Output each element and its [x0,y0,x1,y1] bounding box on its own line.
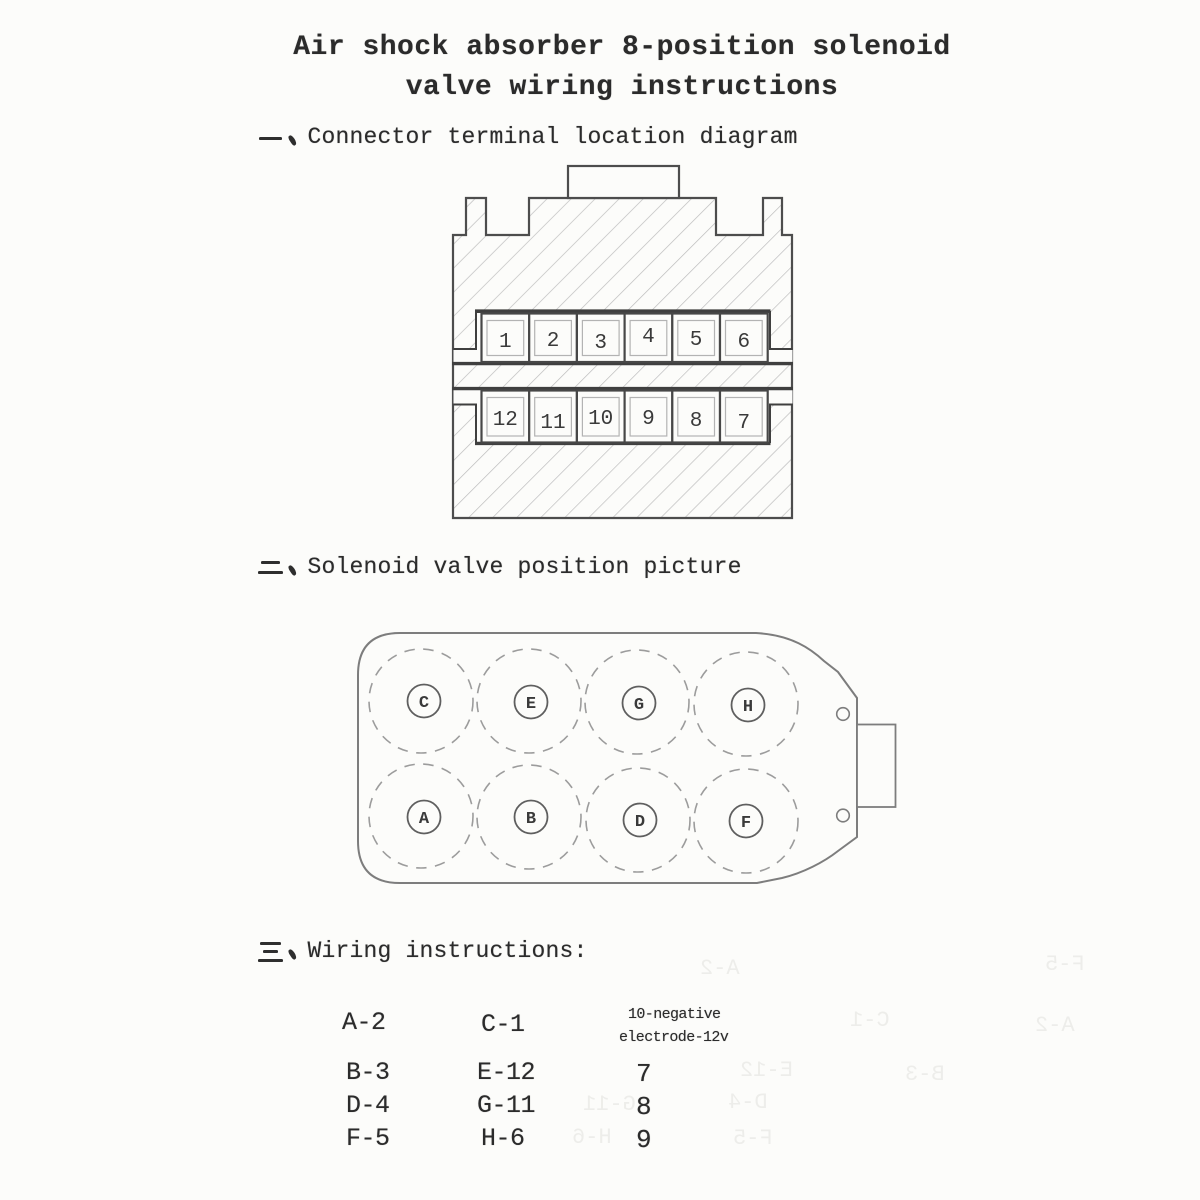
terminal-box-5: 5 [672,314,720,363]
position-label: B [526,810,536,829]
ghost-text: C-1 [850,1008,890,1033]
terminal-label: 10 [588,408,613,431]
ghost-text: A-2 [700,956,740,981]
terminal-label: 6 [737,331,750,354]
terminal-box-9: 9 [625,391,673,443]
connector-diagram: 1 2 3 4 5 6 [443,158,803,530]
terminal-label: 3 [594,332,607,355]
section-2-heading-text: Solenoid valve position picture [308,554,742,580]
position-label: D [635,813,645,832]
terminal-label: 11 [540,412,565,435]
terminal-box-6: 6 [720,314,768,363]
cjk-marker-one [258,124,283,150]
terminal-box-1: 1 [482,314,530,363]
cjk-marker-two [258,554,283,580]
terminal-label: 12 [493,409,518,432]
ghost-text: E-12 [740,1058,793,1083]
position-label: C [419,694,429,713]
negative-note-line2: electrode-12v [619,1029,728,1046]
page-title-line1: Air shock absorber 8-position solenoid [22,28,1200,68]
terminal-label: 5 [690,329,703,352]
terminal-box-3: 3 [577,314,625,363]
valve-diagram: C E G H A B D F [348,620,908,896]
ghost-text: A-2 [1035,1013,1075,1038]
cjk-comma-icon [287,564,297,576]
valve-mount-tab [857,725,896,808]
terminal-label: 7 [737,412,750,435]
position-label: E [526,695,536,714]
page-title-line2: valve wiring instructions [22,68,1200,108]
wiring-entry-H: H-6 [481,1124,525,1153]
wiring-entry-A: A-2 [342,1008,386,1037]
cjk-comma-icon [287,948,297,960]
terminal-row-bottom: 12 11 10 9 8 7 [482,391,768,443]
page-title: Air shock absorber 8-position solenoid v… [22,28,1200,108]
wiring-entry-F: F-5 [346,1124,390,1153]
valve-body [358,633,857,883]
terminal-row-top: 1 2 3 4 5 6 [482,314,768,363]
wiring-entry-D: D-4 [346,1091,390,1120]
wiring-entry-G: G-11 [477,1091,535,1120]
ghost-text: F-5 [1045,952,1085,977]
terminal-box-2: 2 [529,314,577,363]
position-label: A [419,810,430,829]
terminal-label: 9 [642,408,655,431]
terminal-label: 2 [547,330,560,353]
terminal-box-7: 7 [720,391,768,443]
terminal-box-8: 8 [672,391,720,443]
section-3-heading: Wiring instructions: [258,936,588,966]
terminal-box-4: 4 [625,314,673,363]
wiring-entry-C: C-1 [481,1010,525,1039]
cjk-comma-icon [287,134,297,146]
wiring-entry-E: E-12 [477,1058,535,1087]
position-label: H [743,698,753,717]
cjk-marker-three [258,938,283,964]
section-1-heading-text: Connector terminal location diagram [308,124,798,150]
wiring-pin-7: 7 [636,1059,652,1089]
ghost-text: G-11 [583,1092,636,1117]
wiring-pin-8: 8 [636,1092,652,1122]
wiring-pin-9: 9 [636,1125,652,1155]
section-1-heading: Connector terminal location diagram [258,122,798,152]
terminal-label: 1 [499,331,512,354]
ghost-text: D-4 [728,1090,768,1115]
ghost-text: B-3 [905,1062,945,1087]
terminal-box-12: 12 [482,391,530,443]
section-2-heading: Solenoid valve position picture [258,552,742,582]
section-3-heading-text: Wiring instructions: [308,938,588,964]
terminal-label: 4 [642,326,655,349]
ghost-text: F-5 [733,1126,773,1151]
wiring-entry-B: B-3 [346,1058,390,1087]
negative-note-line1: 10-negative [628,1006,720,1023]
position-label: F [741,814,751,833]
position-label: G [634,696,644,715]
ghost-text: H-6 [572,1125,612,1150]
connector-top-tab [568,166,679,198]
terminal-box-10: 10 [577,391,625,443]
terminal-box-11: 11 [529,391,577,443]
terminal-label: 8 [690,410,703,433]
